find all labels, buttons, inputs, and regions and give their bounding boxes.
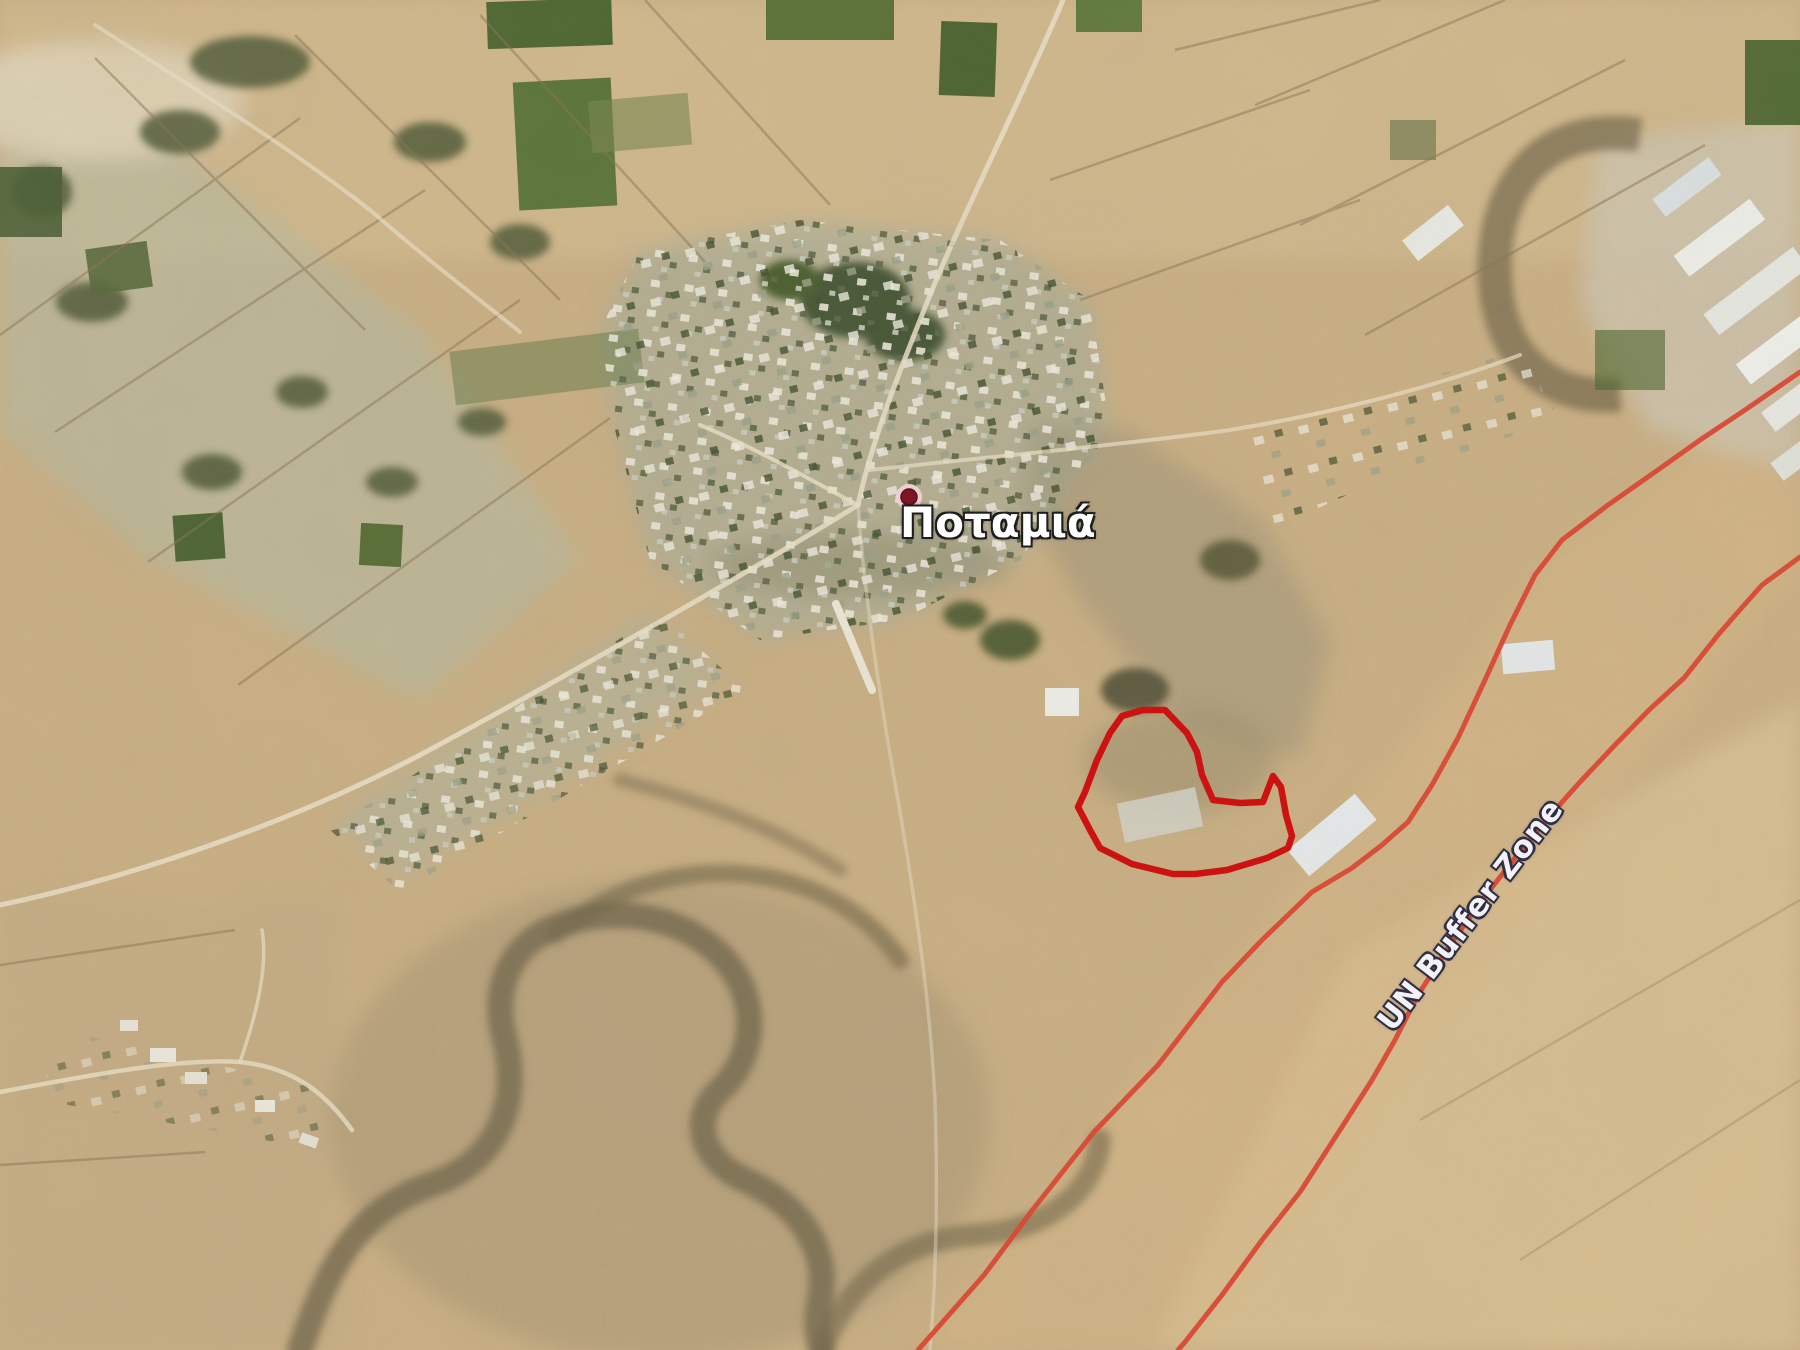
map-annotations xyxy=(0,0,1800,1350)
satellite-map-canvas[interactable]: Ποταμιά UN Buffer Zone xyxy=(0,0,1800,1350)
un-buffer-zone-lines xyxy=(918,372,1800,1350)
place-marker-pin[interactable] xyxy=(896,484,922,510)
parcel-outline[interactable] xyxy=(1078,710,1292,874)
